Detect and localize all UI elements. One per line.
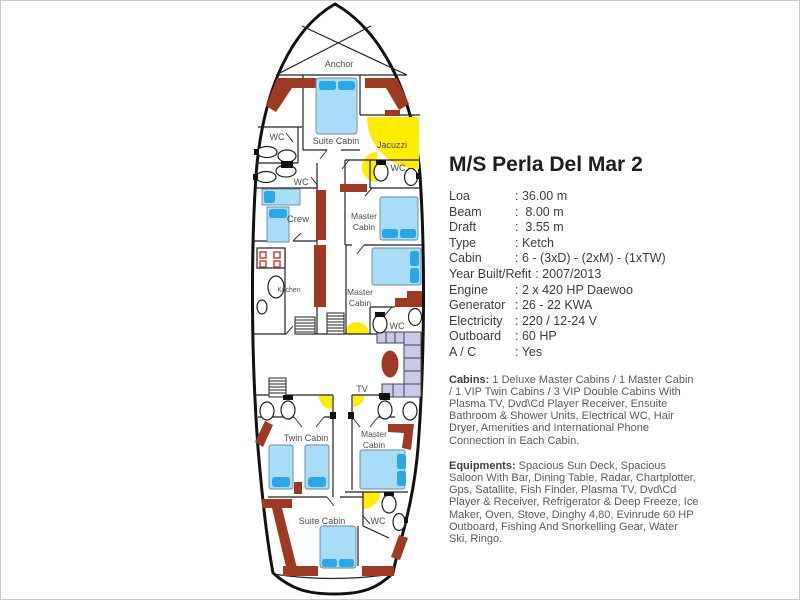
spec-label: Outboard bbox=[449, 329, 515, 345]
staircase bbox=[269, 378, 286, 397]
equipments-heading: Equipments: bbox=[449, 460, 516, 472]
spec-row: Outboard: 60 HP bbox=[449, 329, 749, 345]
bed-suite-fore bbox=[316, 78, 357, 134]
info-panel: M/S Perla Del Mar 2 Loa: 36.00 m Beam: 8… bbox=[449, 153, 749, 556]
sink-oval bbox=[405, 169, 418, 186]
spec-row: Type: Ketch bbox=[449, 236, 749, 252]
pillow bbox=[400, 229, 416, 238]
sink-oval bbox=[281, 401, 295, 419]
bed-master-2 bbox=[372, 248, 421, 285]
sink-oval bbox=[393, 514, 405, 531]
bed-crew-1 bbox=[262, 189, 300, 205]
spec-value: : 2007/2013 bbox=[535, 267, 601, 281]
bed-master-1 bbox=[380, 197, 418, 240]
label-master-3b: Cabin bbox=[363, 440, 385, 450]
staircase bbox=[295, 317, 315, 334]
sink-oval bbox=[256, 172, 276, 183]
label-twin-cabin: Twin Cabin bbox=[284, 433, 329, 443]
label-crew: Crew bbox=[287, 214, 309, 225]
pillow bbox=[338, 81, 355, 90]
spec-value: : 36.00 m bbox=[515, 189, 567, 203]
spec-row: Engine: 2 x 420 HP Daewoo bbox=[449, 283, 749, 299]
sink-oval bbox=[257, 147, 277, 158]
equipments-text: Spacious Sun Deck, Spacious Saloon With … bbox=[449, 460, 698, 545]
pillow bbox=[410, 268, 419, 283]
stove bbox=[257, 248, 285, 268]
spec-label: Generator bbox=[449, 298, 515, 314]
spec-value: : Ketch bbox=[515, 236, 554, 250]
bulkhead bbox=[262, 499, 292, 508]
pillow bbox=[272, 477, 290, 487]
bulkhead bbox=[283, 566, 318, 576]
pillow bbox=[322, 559, 337, 567]
spec-list: Loa: 36.00 m Beam: 8.00 m Draft: 3.55 m … bbox=[449, 189, 749, 361]
pillow bbox=[410, 251, 419, 266]
pillow bbox=[264, 191, 275, 203]
spec-row: Draft: 3.55 m bbox=[449, 220, 749, 236]
label-master-1b: Cabin bbox=[353, 222, 375, 232]
spec-value: : 60 HP bbox=[515, 329, 557, 343]
boat-title: M/S Perla Del Mar 2 bbox=[449, 153, 749, 177]
spec-value: : 26 - 22 KWA bbox=[515, 298, 592, 312]
cabins-paragraph: Cabins: 1 Deluxe Master Cabins / 1 Maste… bbox=[449, 374, 699, 447]
spec-row: Cabin: 6 - (3xD) - (2xM) - (1xTW) bbox=[449, 251, 749, 267]
bulkhead bbox=[294, 482, 302, 494]
spec-value: : 2 x 420 HP Daewoo bbox=[515, 283, 633, 297]
label-kitchen: Kitchen bbox=[277, 287, 300, 294]
spec-row: A / C: Yes bbox=[449, 345, 749, 361]
spec-label: Engine bbox=[449, 283, 515, 299]
bulkhead bbox=[385, 110, 400, 116]
pillow bbox=[308, 477, 326, 487]
spec-value: : 3.55 m bbox=[515, 220, 564, 234]
staircase bbox=[327, 313, 344, 334]
sink-oval bbox=[257, 300, 267, 314]
toilet-oval bbox=[382, 495, 396, 513]
sink-oval bbox=[403, 402, 417, 420]
spec-row: Loa: 36.00 m bbox=[449, 189, 749, 205]
label-master-3a: Master bbox=[361, 429, 387, 439]
pillow bbox=[319, 81, 336, 90]
cabins-heading: Cabins: bbox=[449, 374, 489, 386]
spec-label: Year Built/Refit bbox=[449, 267, 535, 283]
spec-label: Cabin bbox=[449, 251, 515, 267]
bed-suite-aft bbox=[320, 526, 356, 568]
spec-label: Loa bbox=[449, 189, 515, 205]
label-suite-cabin-aft: Suite Cabin bbox=[299, 516, 346, 526]
label-wc-4: WC bbox=[390, 321, 405, 331]
label-master-2b: Cabin bbox=[349, 298, 371, 308]
label-wc-2: WC bbox=[294, 177, 309, 187]
sink-oval bbox=[378, 401, 392, 419]
boat-deck-plan: Anchor Suite Cabin WC Jacuzzi WC WC Crew… bbox=[0, 0, 460, 600]
pillow bbox=[382, 229, 398, 238]
pillow bbox=[397, 471, 406, 486]
dining-table bbox=[382, 351, 399, 378]
label-wc-1: WC bbox=[270, 132, 285, 142]
toilet-oval bbox=[373, 315, 387, 333]
spec-row: Electricity: 220 / 12-24 V bbox=[449, 314, 749, 330]
bulkhead bbox=[362, 566, 394, 576]
spec-value: : 6 - (3xD) - (2xM) - (1xTW) bbox=[515, 251, 666, 265]
spec-value: : Yes bbox=[515, 345, 542, 359]
label-jacuzzi: Jacuzzi bbox=[377, 140, 407, 150]
bed-twin-1 bbox=[269, 445, 293, 489]
bed-crew-2 bbox=[267, 207, 289, 242]
pillow bbox=[397, 454, 406, 469]
spec-label: A / C bbox=[449, 345, 515, 361]
label-tv: TV bbox=[356, 384, 368, 394]
spec-label: Draft bbox=[449, 220, 515, 236]
spec-label: Beam bbox=[449, 205, 515, 221]
spec-label: Electricity bbox=[449, 314, 515, 330]
toilet-oval bbox=[278, 150, 296, 162]
bed-master-3 bbox=[360, 450, 406, 489]
bulkhead bbox=[340, 184, 367, 192]
label-wc-3: WC bbox=[391, 163, 406, 173]
sink-oval bbox=[260, 402, 274, 420]
spec-value: : 8.00 m bbox=[515, 205, 564, 219]
spec-row: Generator: 26 - 22 KWA bbox=[449, 298, 749, 314]
bulkhead bbox=[316, 190, 326, 240]
label-master-1a: Master bbox=[351, 211, 377, 221]
bulkhead bbox=[314, 245, 326, 307]
label-wc-5: WC bbox=[371, 516, 386, 526]
spec-value: : 220 / 12-24 V bbox=[515, 314, 597, 328]
pillow bbox=[339, 559, 354, 567]
label-master-2a: Master bbox=[347, 287, 373, 297]
bed-twin-2 bbox=[305, 445, 329, 489]
toilet-oval bbox=[374, 163, 388, 181]
equipments-paragraph: Equipments: Spacious Sun Deck, Spacious … bbox=[449, 460, 699, 545]
label-anchor: Anchor bbox=[325, 59, 354, 69]
label-suite-cabin-fore: Suite Cabin bbox=[313, 136, 360, 146]
spec-row: Beam: 8.00 m bbox=[449, 205, 749, 221]
spec-label: Type bbox=[449, 236, 515, 252]
spec-row: Year Built/Refit: 2007/2013 bbox=[449, 267, 749, 283]
sink-oval bbox=[409, 309, 422, 326]
pillow bbox=[269, 209, 287, 218]
